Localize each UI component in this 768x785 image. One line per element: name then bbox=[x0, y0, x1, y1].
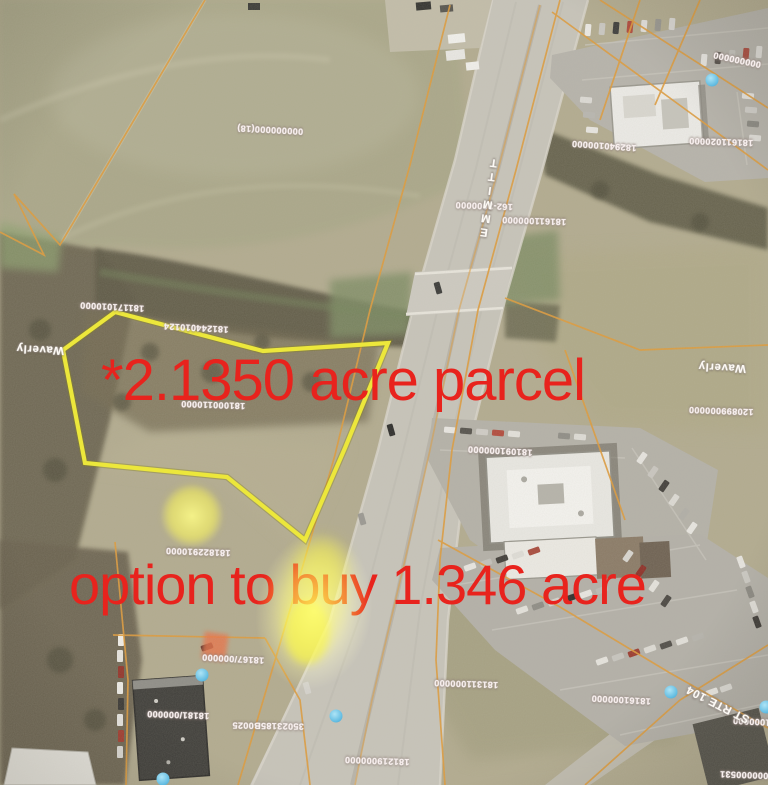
parcel-acreage-annotation: *2.1350 acre parcel bbox=[101, 352, 585, 410]
aerial-parcel-map[interactable]: 000000000(18)162-20000001816110000001829… bbox=[0, 0, 768, 785]
option-acreage-annotation: option to buy 1.346 acre bbox=[69, 557, 646, 613]
